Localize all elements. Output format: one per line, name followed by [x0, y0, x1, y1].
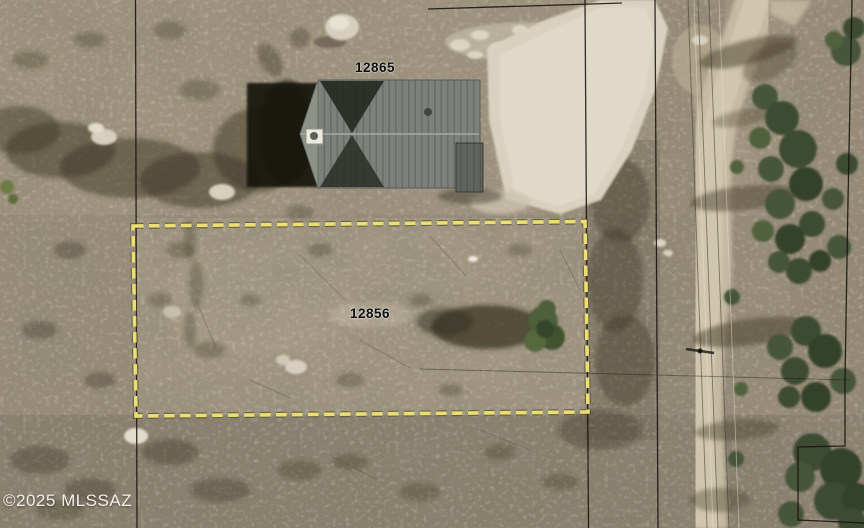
parcel-label-highlighted-lot: 12856: [350, 306, 390, 321]
aerial-photo: [0, 0, 864, 528]
house: [247, 80, 502, 204]
parcel-label-house: 12865: [355, 60, 395, 75]
mls-watermark: ©2025 MLSSAZ: [3, 491, 132, 511]
aerial-parcel-map: 12865 12856 ©2025 MLSSAZ: [0, 0, 864, 528]
